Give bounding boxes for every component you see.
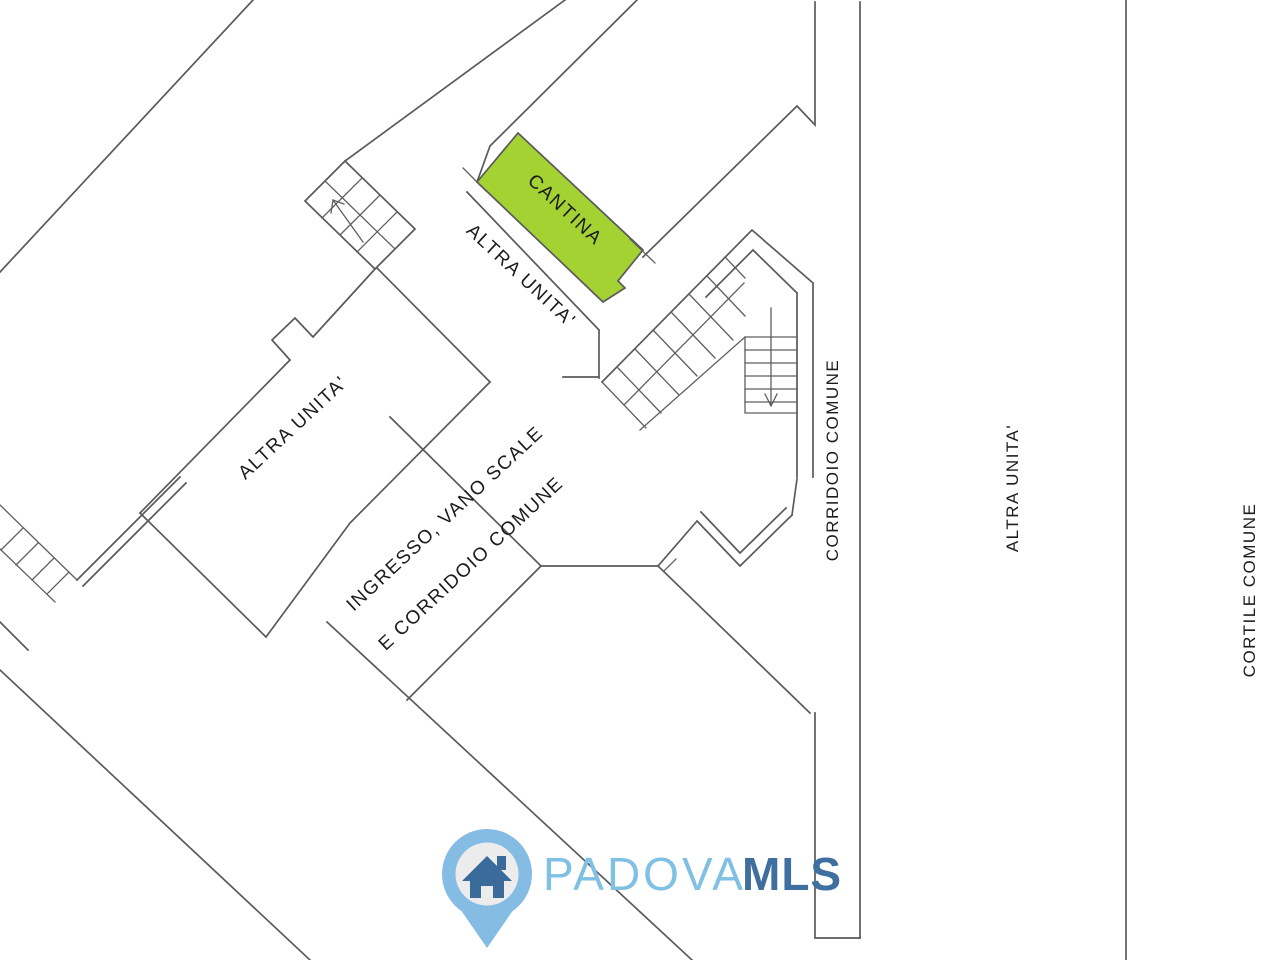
altra-unita-right-label: ALTRA UNITA' bbox=[1003, 424, 1022, 552]
lower-left-walls bbox=[0, 622, 692, 960]
stair-down-arrow bbox=[765, 308, 777, 406]
logo-text-secondary: MLS bbox=[742, 848, 842, 900]
floor-plan-page: CANTINA ALTRA UNITA' ALTRA UNITA' INGRES… bbox=[0, 0, 1280, 960]
corridoio-comune-label: CORRIDOIO COMUNE bbox=[823, 359, 842, 562]
logo-text-primary: PADOVA bbox=[543, 848, 746, 900]
stair-direction-arrow bbox=[331, 200, 363, 242]
upper-staircase bbox=[305, 161, 415, 269]
diagonal-stair-flight bbox=[602, 257, 745, 430]
outer-walls bbox=[0, 0, 815, 272]
stairwell-enclosure bbox=[602, 230, 813, 566]
straight-stair-flight bbox=[745, 308, 797, 413]
cortile-comune-label: CORTILE COMUNE bbox=[1240, 503, 1259, 678]
floor-plan-drawing: CANTINA ALTRA UNITA' ALTRA UNITA' INGRES… bbox=[0, 0, 1280, 960]
altra-unita-main-label: ALTRA UNITA' bbox=[234, 372, 352, 484]
watermark-logo: PADOVA MLS bbox=[442, 829, 842, 948]
